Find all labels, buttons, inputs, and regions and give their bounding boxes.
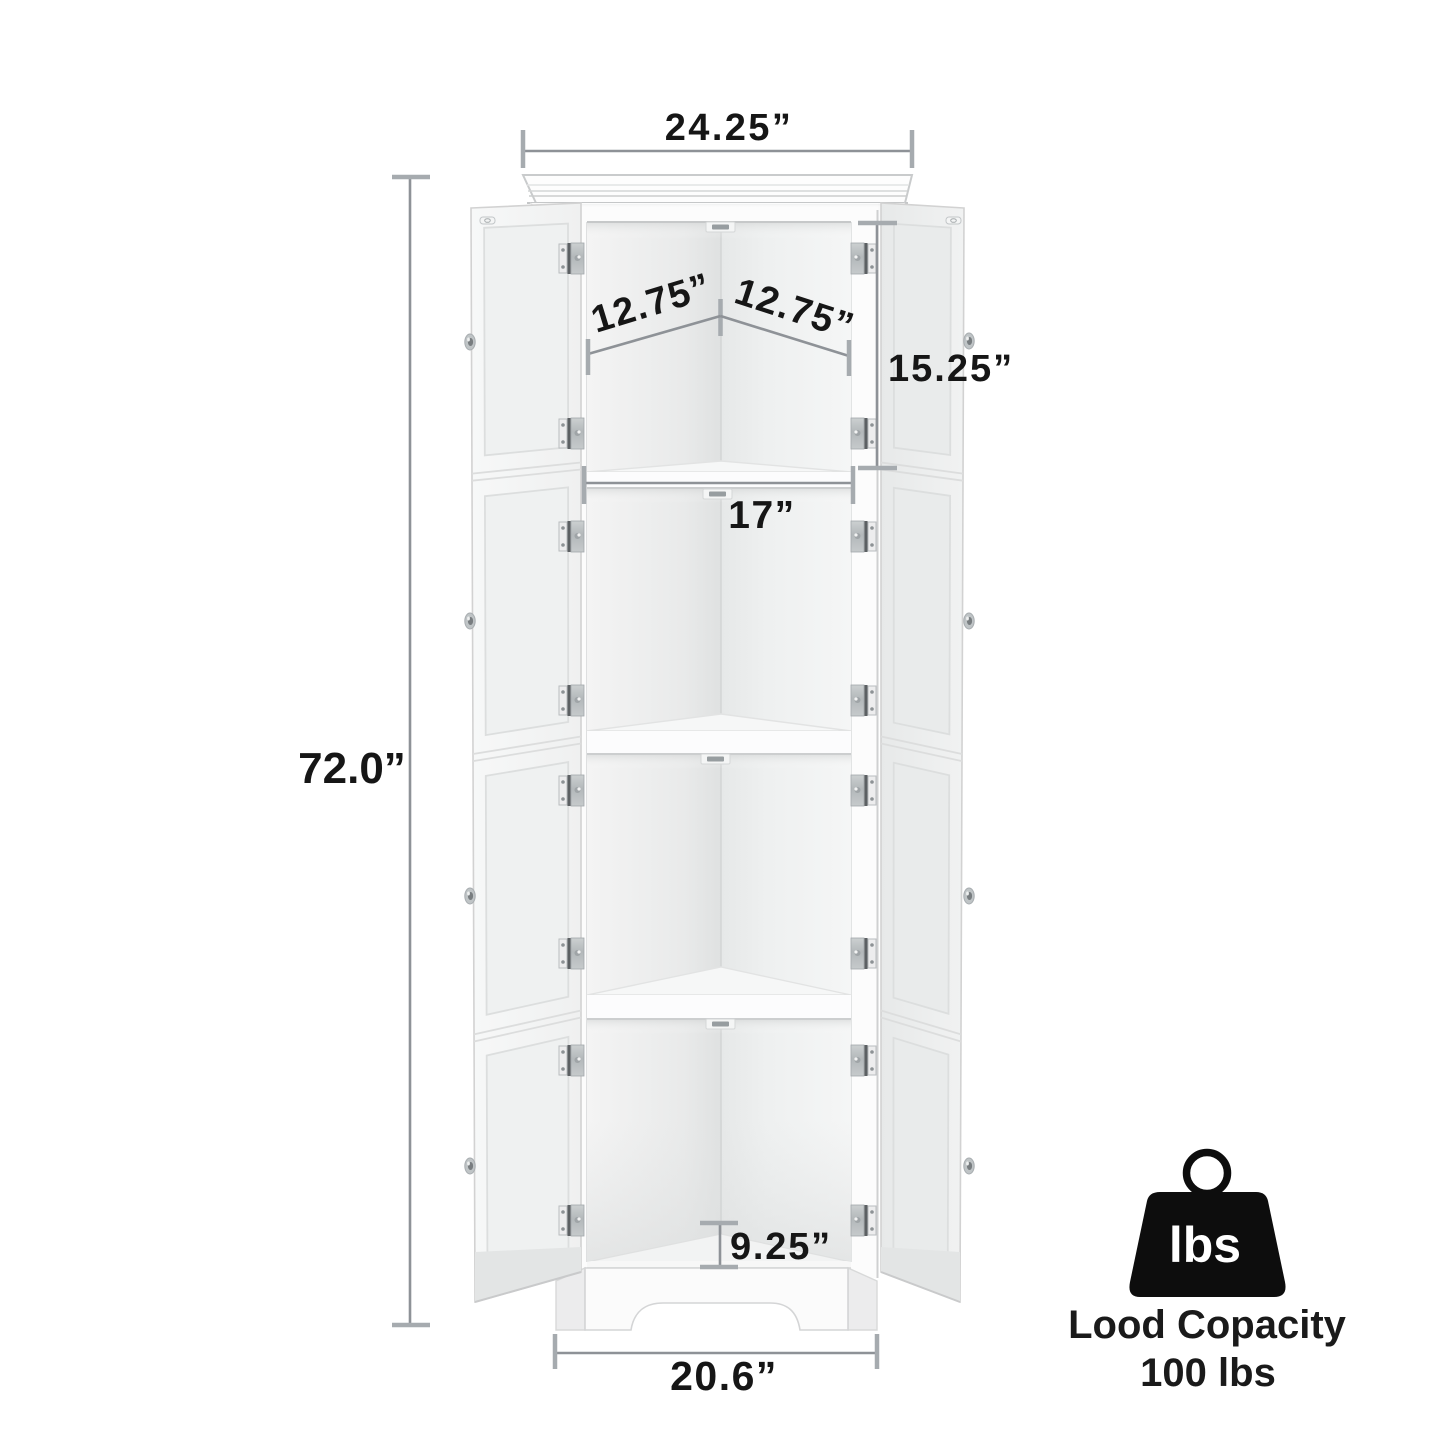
svg-text:100 lbs: 100 lbs <box>1140 1351 1276 1395</box>
svg-text:15.25”: 15.25” <box>888 348 1014 390</box>
svg-text:24.25”: 24.25” <box>665 107 794 149</box>
svg-text:72.0”: 72.0” <box>298 744 406 793</box>
svg-text:17”: 17” <box>728 494 795 537</box>
svg-text:lbs: lbs <box>1169 1217 1241 1273</box>
svg-text:9.25”: 9.25” <box>730 1226 832 1268</box>
svg-text:20.6”: 20.6” <box>670 1353 778 1399</box>
svg-text:Lood Copacity: Lood Copacity <box>1068 1303 1347 1347</box>
